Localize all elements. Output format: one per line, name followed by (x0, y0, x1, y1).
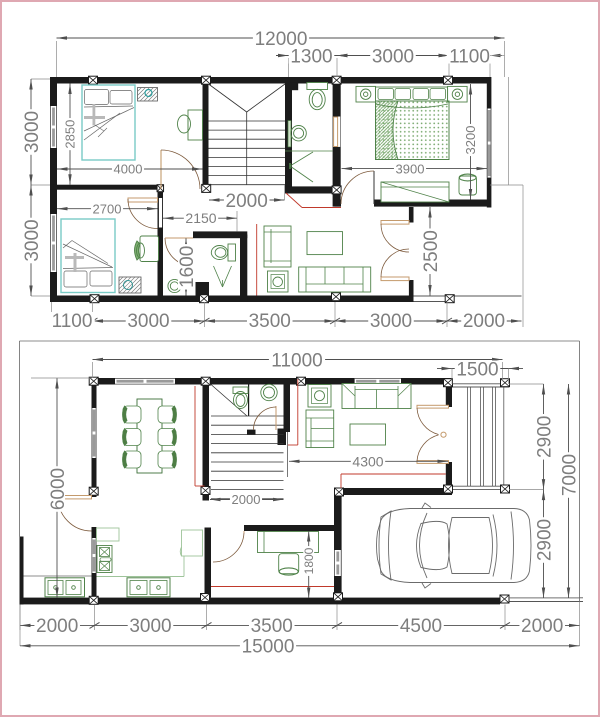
svg-text:3000: 3000 (372, 46, 414, 67)
svg-text:3000: 3000 (127, 311, 169, 332)
svg-text:2000: 2000 (463, 311, 505, 332)
svg-text:3500: 3500 (251, 616, 293, 637)
svg-text:7000: 7000 (559, 454, 580, 496)
svg-text:2850: 2850 (63, 120, 78, 149)
svg-text:3200: 3200 (463, 126, 478, 155)
svg-text:3900: 3900 (396, 161, 425, 176)
svg-text:3000: 3000 (22, 219, 43, 261)
svg-text:4300: 4300 (352, 453, 383, 469)
svg-text:6000: 6000 (48, 468, 69, 510)
svg-text:15000: 15000 (242, 637, 295, 658)
svg-text:2900: 2900 (534, 416, 555, 458)
svg-text:2900: 2900 (534, 519, 555, 561)
svg-text:1500: 1500 (456, 359, 498, 380)
svg-text:3000: 3000 (370, 311, 412, 332)
svg-text:4000: 4000 (114, 162, 143, 177)
svg-text:2000: 2000 (232, 492, 261, 507)
svg-text:4500: 4500 (400, 616, 442, 637)
svg-text:1800: 1800 (302, 547, 316, 574)
svg-text:1300: 1300 (290, 46, 332, 67)
svg-text:2700: 2700 (93, 201, 122, 216)
svg-text:11000: 11000 (271, 350, 322, 371)
svg-text:2500: 2500 (421, 230, 442, 272)
svg-text:1100: 1100 (449, 46, 490, 67)
svg-text:2000: 2000 (226, 191, 268, 212)
svg-text:1100: 1100 (52, 311, 93, 332)
svg-text:2000: 2000 (36, 616, 78, 637)
svg-text:2150: 2150 (185, 210, 216, 226)
svg-text:2000: 2000 (521, 616, 563, 637)
svg-text:1600: 1600 (177, 246, 198, 288)
svg-text:3000: 3000 (22, 111, 43, 153)
svg-text:3500: 3500 (249, 311, 291, 332)
svg-text:3000: 3000 (129, 616, 171, 637)
